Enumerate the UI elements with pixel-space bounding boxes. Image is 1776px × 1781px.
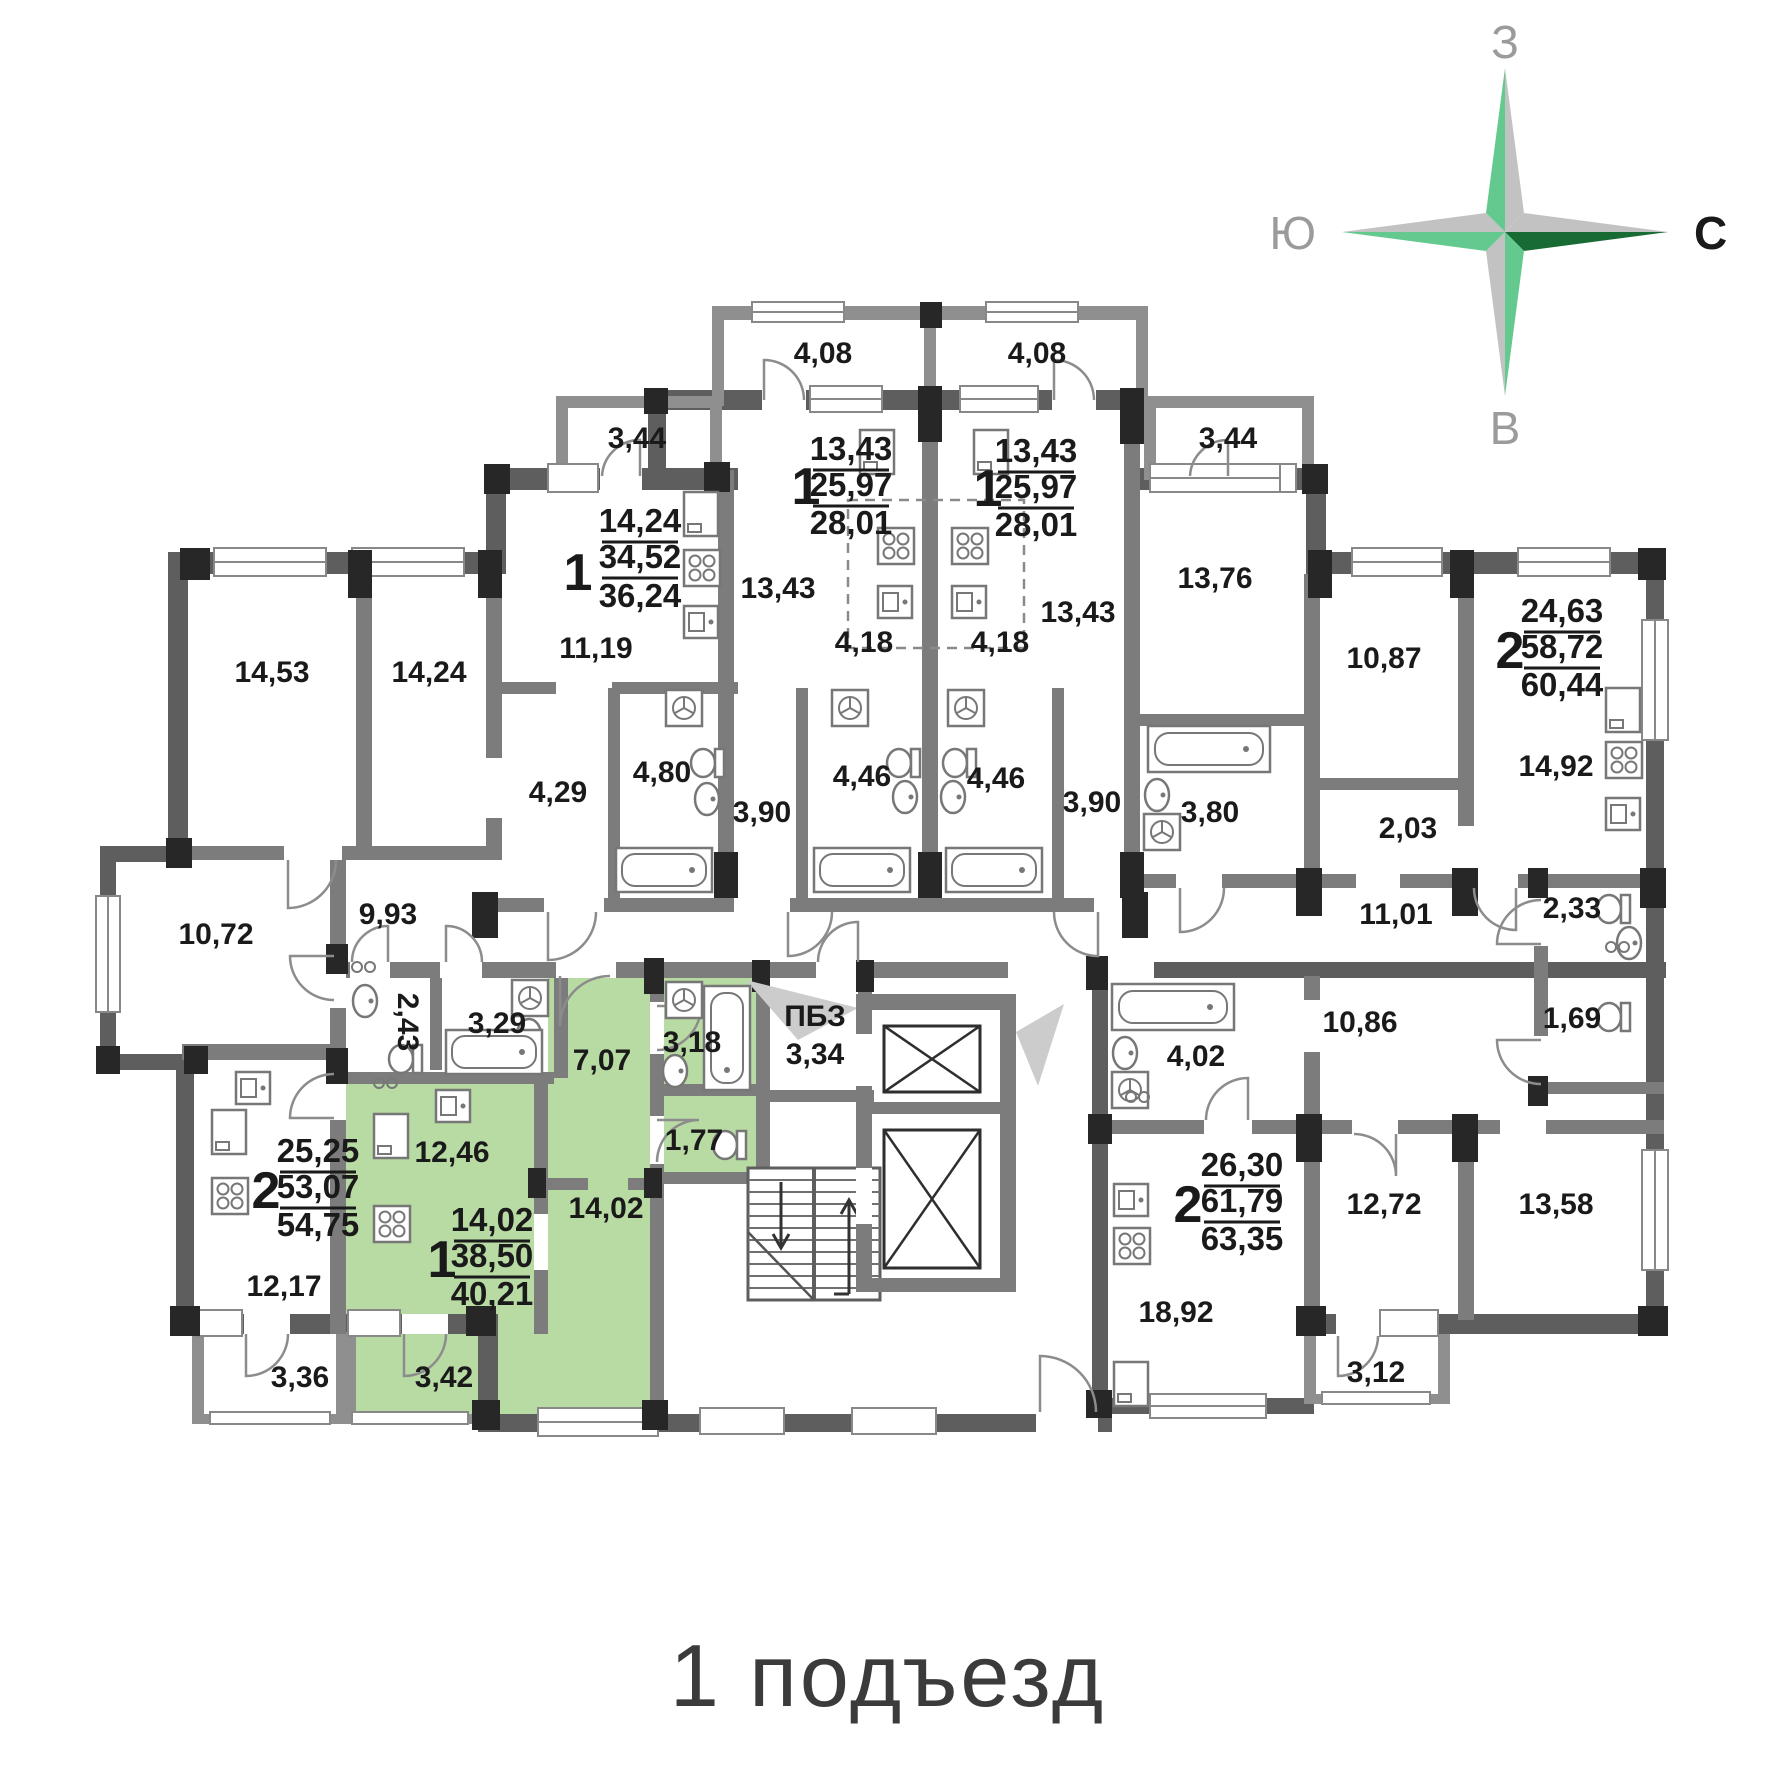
pbz-label: ПБЗ bbox=[784, 1000, 846, 1033]
fridge-icon bbox=[684, 492, 718, 536]
stove-icon bbox=[1606, 742, 1642, 778]
apartment-area: 38,50 bbox=[451, 1237, 534, 1274]
washer-icon bbox=[666, 982, 702, 1018]
room-area-label: 3,29 bbox=[468, 1007, 526, 1040]
stove-icon bbox=[684, 550, 720, 586]
compass-rose: З Ю С В bbox=[1270, 16, 1728, 454]
apartment-total-area: 28,01 bbox=[810, 504, 893, 541]
room-area-label: 14,24 bbox=[391, 656, 466, 689]
washer-icon bbox=[948, 690, 984, 726]
room-area-label: 18,92 bbox=[1138, 1296, 1213, 1329]
kitchen-sink-icon bbox=[952, 586, 986, 618]
apartment-rooms-count: 2 bbox=[1174, 1176, 1203, 1234]
fridge-icon bbox=[1114, 1362, 1148, 1406]
kitchen-sink-icon bbox=[436, 1090, 470, 1122]
bath-sink-icon bbox=[893, 781, 917, 813]
apartment-area: 34,52 bbox=[599, 538, 682, 575]
room-area-label: 11,01 bbox=[1359, 898, 1432, 931]
toilet-icon bbox=[1597, 895, 1630, 923]
toilet-icon bbox=[887, 749, 920, 777]
bathtub-icon bbox=[814, 848, 910, 892]
compass-west-label: З bbox=[1491, 16, 1519, 68]
room-area-label: 3,12 bbox=[1347, 1356, 1405, 1389]
room-area-label: 10,87 bbox=[1346, 642, 1421, 675]
stove-icon bbox=[1114, 1228, 1150, 1264]
apartment-label-28-01-left[interactable]: 1 13,43 25,97 28,01 bbox=[792, 430, 893, 541]
room-area-label: 7,07 bbox=[573, 1044, 631, 1077]
room-area-label: 10,86 bbox=[1322, 1006, 1397, 1039]
apartment-label-60-44[interactable]: 2 24,63 58,72 60,44 bbox=[1496, 592, 1604, 703]
fridge-icon bbox=[374, 1114, 408, 1158]
stove-icon bbox=[952, 528, 988, 564]
room-area-label: 3,44 bbox=[608, 422, 667, 455]
compass-east-label: В bbox=[1490, 402, 1521, 454]
fridge-icon bbox=[212, 1110, 246, 1154]
room-area-label: 13,43 bbox=[1040, 596, 1115, 629]
apartment-total-area: 40,21 bbox=[451, 1275, 534, 1312]
room-area-label: 3,44 bbox=[1199, 422, 1258, 455]
apartment-living-area: 14,24 bbox=[599, 502, 682, 539]
room-area-label: 3,36 bbox=[271, 1361, 329, 1394]
washer-icon bbox=[666, 690, 702, 726]
bath-sink-icon bbox=[941, 781, 965, 813]
room-area-label: 4,46 bbox=[833, 760, 891, 793]
pbz-area-label: 3,34 bbox=[786, 1038, 845, 1071]
apartment-label-63-35[interactable]: 2 26,30 61,79 63,35 bbox=[1174, 1146, 1284, 1257]
room-area-label: 9,93 bbox=[359, 898, 417, 931]
room-area-label: 13,76 bbox=[1177, 562, 1252, 595]
apartment-living-area: 14,02 bbox=[451, 1201, 534, 1238]
fridge-icon bbox=[1606, 688, 1640, 732]
apartment-total-area: 28,01 bbox=[995, 506, 1078, 543]
room-area-label: 4,08 bbox=[1008, 337, 1066, 370]
apartment-area: 25,97 bbox=[995, 468, 1078, 505]
room-area-label: 4,80 bbox=[633, 756, 691, 789]
bathtub-icon bbox=[946, 848, 1042, 892]
room-area-label: 4,18 bbox=[971, 626, 1029, 659]
bath-sink-icon bbox=[663, 1055, 687, 1087]
room-area-label: 13,58 bbox=[1518, 1188, 1593, 1221]
room-area-label: 2,43 bbox=[391, 993, 424, 1051]
bath-sink-icon bbox=[1113, 1037, 1137, 1069]
bathtub-icon bbox=[1148, 726, 1270, 772]
room-area-label: 12,17 bbox=[246, 1270, 321, 1303]
kitchen-sink-icon bbox=[878, 586, 912, 618]
stove-icon bbox=[374, 1206, 410, 1242]
apartment-living-area: 13,43 bbox=[995, 432, 1078, 469]
toilet-icon bbox=[691, 749, 724, 777]
apartment-area: 25,97 bbox=[810, 466, 893, 503]
apartment-total-area: 54,75 bbox=[277, 1206, 360, 1243]
apartment-living-area: 24,63 bbox=[1521, 592, 1604, 629]
room-area-label: 3,90 bbox=[1063, 786, 1121, 819]
apartment-living-area: 25,25 bbox=[277, 1132, 360, 1169]
room-area-label: 3,42 bbox=[415, 1361, 473, 1394]
apartment-area: 53,07 bbox=[277, 1168, 360, 1205]
apartment-rooms-count: 1 bbox=[564, 544, 593, 602]
kitchen-sink-icon bbox=[684, 606, 718, 638]
room-area-label: 14,92 bbox=[1518, 750, 1593, 783]
apartment-label-54-75[interactable]: 2 25,25 53,07 54,75 bbox=[252, 1132, 360, 1243]
apartment-living-area: 26,30 bbox=[1201, 1146, 1284, 1183]
floor-plan-page: 4,08 4,08 3,44 3,44 14,53 14,24 11,19 13… bbox=[0, 0, 1776, 1776]
kitchen-sink-icon bbox=[236, 1072, 270, 1104]
compass-north-label: С bbox=[1694, 207, 1727, 259]
kitchen-sink-icon bbox=[1606, 798, 1640, 830]
room-area-label: 1,77 bbox=[665, 1124, 723, 1157]
compass-south-label: Ю bbox=[1270, 207, 1316, 259]
room-area-label: 4,18 bbox=[835, 626, 893, 659]
room-area-label: 2,33 bbox=[1543, 892, 1601, 925]
kitchen-sink-icon bbox=[1114, 1184, 1148, 1216]
apartment-total-area: 36,24 bbox=[599, 577, 682, 614]
room-area-label: 12,46 bbox=[414, 1136, 489, 1169]
bath-sink-icon bbox=[695, 783, 719, 815]
apartment-area: 58,72 bbox=[1521, 628, 1604, 665]
room-area-label: 4,08 bbox=[794, 337, 852, 370]
toilet-icon bbox=[1597, 1003, 1630, 1031]
apartment-living-area: 13,43 bbox=[810, 430, 893, 467]
room-area-label: 12,72 bbox=[1346, 1188, 1421, 1221]
apartment-total-area: 63,35 bbox=[1201, 1220, 1284, 1257]
room-area-label: 1,69 bbox=[1543, 1002, 1601, 1035]
room-area-label: 3,90 bbox=[733, 796, 791, 829]
room-area-label: 3,18 bbox=[663, 1026, 721, 1059]
washer-icon bbox=[1144, 814, 1180, 850]
room-area-label: 3,80 bbox=[1181, 796, 1239, 829]
room-area-label: 11,19 bbox=[559, 632, 632, 665]
floor-plan: 4,08 4,08 3,44 3,44 14,53 14,24 11,19 13… bbox=[0, 0, 1776, 1776]
bathtub-icon bbox=[616, 848, 712, 892]
apartment-label-36-24[interactable]: 1 14,24 34,52 36,24 bbox=[564, 502, 682, 614]
page-title: 1 подъезд bbox=[670, 1626, 1106, 1725]
apartment-total-area: 60,44 bbox=[1521, 666, 1604, 703]
room-area-label: 10,72 bbox=[178, 918, 253, 951]
room-area-label: 2,03 bbox=[1379, 812, 1437, 845]
stove-icon bbox=[212, 1178, 248, 1214]
room-area-label: 14,02 bbox=[568, 1192, 643, 1225]
room-area-label: 4,46 bbox=[967, 762, 1025, 795]
bath-sink-icon bbox=[353, 985, 377, 1017]
room-area-label: 4,02 bbox=[1167, 1040, 1225, 1073]
bath-sink-icon bbox=[1145, 779, 1169, 811]
room-area-label: 13,43 bbox=[740, 572, 815, 605]
washer-icon bbox=[832, 690, 868, 726]
bathtub-icon bbox=[1112, 984, 1234, 1030]
room-area-label: 4,29 bbox=[529, 776, 587, 809]
apartment-area: 61,79 bbox=[1201, 1182, 1284, 1219]
room-area-label: 14,53 bbox=[234, 656, 309, 689]
